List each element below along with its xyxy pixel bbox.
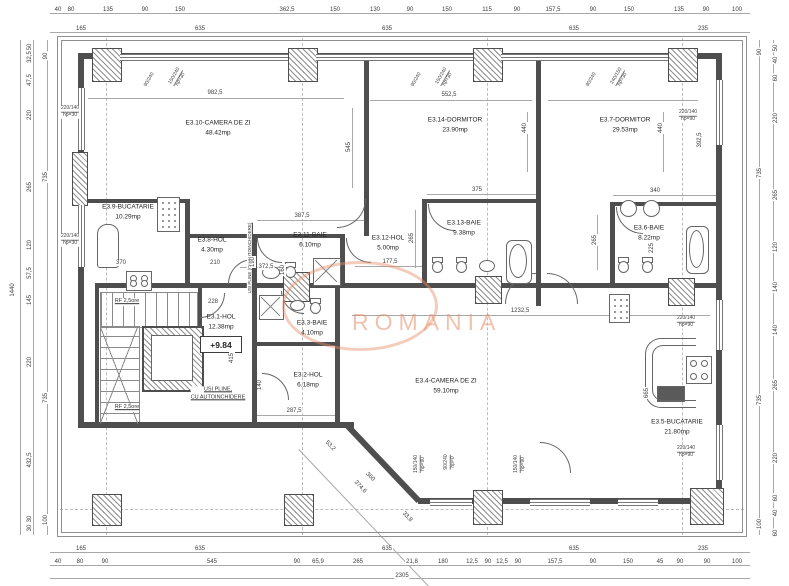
dimension-text: 140 <box>773 324 779 336</box>
dimension-line <box>352 108 353 188</box>
room-name: E3.11-BAIE <box>293 230 326 240</box>
dimension-text: 115 <box>481 7 493 13</box>
dimension-line <box>613 195 716 196</box>
wall <box>252 288 257 426</box>
dimension-text: 735 <box>757 167 763 179</box>
elevator-cab <box>151 335 193 381</box>
room-name: E3.14-DORMITOR <box>428 115 482 125</box>
dimension-text: 12,5 <box>465 559 479 565</box>
wall <box>335 288 340 428</box>
dimension-line <box>50 552 750 553</box>
dimension-text: 90 <box>702 7 711 13</box>
dimension-text: 2305 <box>394 573 409 579</box>
room-area: 21.80mp <box>651 427 703 437</box>
dimension-text: 265 <box>352 559 364 565</box>
dimension-text: 362,5 <box>278 7 295 13</box>
window <box>501 54 668 61</box>
room-name: E3.8-HOL <box>198 235 227 245</box>
structural-column <box>668 48 698 82</box>
window-tag: 220/140hp=90 <box>679 110 697 123</box>
dimension-text: 190 <box>250 256 256 268</box>
dimension-line <box>257 415 339 416</box>
dimension-text: 210 <box>209 260 221 266</box>
toilet-fixture <box>618 257 629 273</box>
dimension-text: 90 <box>101 559 110 565</box>
dimension-text: 90 <box>513 7 522 13</box>
room-label: E3.2-HOL6.18mp <box>294 370 323 390</box>
room-label: E3.3-BAIE4.10mp <box>297 318 327 338</box>
dimension-line <box>759 40 760 535</box>
room-label: E3.14-DORMITOR23.90mp <box>428 115 482 135</box>
dimension-text: 21,8 <box>405 559 419 565</box>
dimension-text: 340 <box>649 188 661 194</box>
structural-column <box>288 48 318 82</box>
structural-column <box>72 152 88 206</box>
window <box>716 80 723 145</box>
dimension-text: 552,5 <box>440 92 457 98</box>
dimension-text: 635 <box>194 546 206 552</box>
dimension-text: 440 <box>658 122 664 134</box>
dimension-text: 635 <box>568 546 580 552</box>
room-label: E3.10-CAMERA DE ZI48.42mp <box>185 118 250 138</box>
shower-cross <box>315 260 337 282</box>
dimension-text: 235 <box>697 546 709 552</box>
door-note-line: CU AUTOINCHIDERE <box>191 394 246 402</box>
dimension-text: 265 <box>409 232 415 244</box>
dimension-text: 228 <box>207 299 219 305</box>
bathtub <box>686 226 709 274</box>
dimension-text: 735 <box>43 392 49 404</box>
room-area: 48.42mp <box>185 128 250 138</box>
dimension-text: 150 <box>329 7 341 13</box>
bathtub-basin <box>509 244 527 278</box>
dimension-text: 735 <box>43 171 49 183</box>
window-sill-height: hp=30 <box>61 113 79 119</box>
stove-burner <box>130 280 137 287</box>
stove-burner <box>141 280 148 287</box>
dimension-text: 65,9 <box>311 559 325 565</box>
kitchen-counter <box>645 338 709 408</box>
dimension-text: 225 <box>649 242 655 254</box>
structural-column <box>284 494 314 526</box>
room-name: E3.10-CAMERA DE ZI <box>185 118 250 128</box>
room-name: E3.6-BAIE <box>634 223 664 233</box>
dimension-text: 12,5 <box>495 559 509 565</box>
room-label: E3.1-HOL12.38mp <box>207 312 236 332</box>
dimension-line <box>33 40 34 535</box>
wall <box>95 283 720 288</box>
dimension-text: 40 <box>54 559 63 565</box>
door-note: USI PLINE,CU AUTOINCHIDERE <box>191 386 246 401</box>
dimension-text: 265 <box>773 379 779 391</box>
room-name: E3.7-DORMITOR <box>600 115 651 125</box>
dimension-text: 265 <box>27 181 33 193</box>
room-area: 6.18mp <box>294 380 323 390</box>
dimension-text: 635 <box>568 26 580 32</box>
dimension-line <box>370 100 532 101</box>
window-sill-height: hp=90 <box>677 453 695 459</box>
dimension-text: 80 <box>67 7 76 13</box>
dimension-text: 665 <box>644 387 650 399</box>
dimension-text: 150 <box>174 7 186 13</box>
dimension-text: 545 <box>206 559 218 565</box>
window <box>78 205 85 267</box>
window-sill-height: hp=90 <box>677 323 695 329</box>
wall <box>422 199 427 287</box>
dimension-text: 60 <box>773 494 779 503</box>
dimension-text: 47,5 <box>27 73 33 87</box>
room-area: 9.38mp <box>447 228 481 238</box>
window <box>716 425 723 480</box>
room-label: E3.13-BAIE9.38mp <box>447 218 481 238</box>
dimension-text: 90 <box>141 7 150 13</box>
shower-cross <box>261 297 280 316</box>
room-label: E3.12-HOL5.00mp <box>372 233 405 253</box>
toilet-fixture <box>456 257 467 273</box>
dimension-line <box>50 13 750 14</box>
wall <box>610 202 615 287</box>
wall <box>536 59 541 306</box>
dimension-text: 157,5 <box>546 559 563 565</box>
dimension-text: 375 <box>471 187 483 193</box>
dimension-text: 40 <box>773 56 779 65</box>
dimension-text: 100 <box>757 518 763 530</box>
dimension-text: 235 <box>697 26 709 32</box>
dimension-text: 220 <box>27 109 33 121</box>
dimension-text: 160 <box>280 264 286 276</box>
dimension-text: 40 <box>54 7 63 13</box>
structural-column <box>92 494 122 526</box>
toilet-fixture <box>310 298 321 314</box>
dimension-text: 45 <box>656 559 665 565</box>
sink-fixture <box>290 300 305 311</box>
window-tag: 220/140hp=30 <box>61 234 79 247</box>
room-area: 5.00mp <box>372 243 405 253</box>
dimension-text: 100 <box>731 7 743 13</box>
dimension-text: 130 <box>369 7 381 13</box>
sink-fixture <box>479 260 495 272</box>
dimension-text: 135 <box>102 7 114 13</box>
dimension-text: 90 <box>703 559 712 565</box>
dimension-text: 90 <box>589 559 598 565</box>
room-name: E3.3-BAIE <box>297 318 327 328</box>
dimension-text: 545 <box>346 141 352 153</box>
dimension-line <box>20 40 21 535</box>
dimension-text: 30 <box>27 524 33 533</box>
dimension-text: 90 <box>406 7 415 13</box>
dimension-text: 140 <box>257 379 263 391</box>
dimension-text: 140 <box>773 281 779 293</box>
wall <box>364 59 369 236</box>
room-label: E3.4-CAMERA DE ZI59.10mp <box>415 376 476 396</box>
dimension-text: 32,5 <box>27 50 33 64</box>
dimension-text: 50 <box>773 44 779 53</box>
dimension-text: 432,5 <box>27 451 33 468</box>
room-name: E3.9-BUCATARIE <box>102 202 154 212</box>
room-area: 59.10mp <box>415 386 476 396</box>
window-sill-height: hp=90 <box>679 117 697 123</box>
dimension-text: 635 <box>381 546 393 552</box>
dimension-text: 635 <box>381 26 393 32</box>
appliance <box>609 294 630 323</box>
dimension-text: 180 <box>437 559 449 565</box>
room-label: E3.9-BUCATARIE10.29mp <box>102 202 154 222</box>
window <box>316 54 473 61</box>
room-label: E3.7-DORMITOR29.53mp <box>600 115 651 135</box>
window <box>120 54 288 61</box>
room-name: E3.4-CAMERA DE ZI <box>415 376 476 386</box>
dimension-text: 165 <box>75 546 87 552</box>
dimension-text: 80 <box>76 559 85 565</box>
dimension-text: 60 <box>773 529 779 538</box>
dimension-line <box>355 266 423 267</box>
dimension-line <box>50 565 750 566</box>
dimension-line <box>415 210 416 268</box>
dimension-text: 60 <box>773 74 779 83</box>
dimension-text: 220 <box>27 356 33 368</box>
dimension-text: 90 <box>43 52 49 61</box>
room-area: 12.38mp <box>207 322 236 332</box>
dimension-line <box>548 100 698 101</box>
room-label: E3.6-BAIE8.22mp <box>634 223 664 243</box>
dimension-text: 372,5 <box>257 264 274 270</box>
window-sill-height: hp=90 <box>421 455 427 473</box>
dimension-text: 100 <box>43 514 49 526</box>
room-area: 23.90mp <box>428 125 482 135</box>
room-name: E3.5-BUCATARIE <box>651 417 703 427</box>
dimension-text: 90 <box>293 559 302 565</box>
elevator-shaft <box>142 326 204 392</box>
window-sill-height: hp=90 <box>521 455 527 473</box>
room-label: E3.5-BUCATARIE21.80mp <box>651 417 703 437</box>
toilet-bowl <box>310 302 321 314</box>
wall <box>185 199 190 287</box>
room-label: E3.8-HOL4.30mp <box>198 235 227 255</box>
wall <box>95 288 99 426</box>
room-area: 4.10mp <box>297 328 327 338</box>
toilet-fixture <box>285 262 296 278</box>
window <box>716 300 723 350</box>
dimension-line <box>50 32 750 33</box>
room-label: E3.11-BAIE6.10mp <box>293 230 326 250</box>
dimension-text: 177,5 <box>381 259 398 265</box>
dimension-text: 90 <box>676 559 685 565</box>
dimension-text: 392,5 <box>697 131 703 148</box>
door-note-line: USI PLINE, <box>191 386 246 394</box>
dimension-text: 157,5 <box>544 7 561 13</box>
dimension-text: 40 <box>773 509 779 518</box>
dimension-text: 265 <box>773 189 779 201</box>
dimension-text: 150 <box>622 559 634 565</box>
dimension-text: 90 <box>514 559 523 565</box>
dimension-text: 100 <box>731 559 743 565</box>
counter-inner <box>652 345 696 401</box>
window <box>618 499 658 506</box>
dimension-text: 150 <box>623 7 635 13</box>
dimension-text: 982,5 <box>206 90 223 96</box>
sink-fixture <box>620 200 637 217</box>
window-tag: 150/140hp=90 <box>414 455 427 473</box>
room-area: 10.29mp <box>102 212 154 222</box>
stove <box>126 271 152 291</box>
window-tag: 220/140hp=90 <box>677 446 695 459</box>
shower-tray <box>313 258 341 286</box>
dimension-text: 90 <box>484 559 493 565</box>
level-marker: +9.84 <box>200 336 242 353</box>
bathtub <box>506 240 532 284</box>
toilet-bowl <box>642 261 653 273</box>
dimension-text: 265 <box>592 234 598 246</box>
toilet-bowl <box>285 266 296 278</box>
room-name: E3.12-HOL <box>372 233 405 243</box>
window <box>78 88 85 150</box>
shower-tray <box>259 295 284 320</box>
window-tag: 90/240hp=0 <box>444 454 457 469</box>
dimension-text: 150 <box>441 7 453 13</box>
room-area: 4.30mp <box>198 245 227 255</box>
dimension-text: 220 <box>773 112 779 124</box>
dimension-text: 220 <box>773 452 779 464</box>
dimension-text: 165 <box>75 26 87 32</box>
dimension-line <box>427 194 537 195</box>
dimension-text: 440 <box>522 122 528 134</box>
dimension-text: 145 <box>27 294 33 306</box>
room-name: E3.13-BAIE <box>447 218 481 228</box>
dimension-text: 287,5 <box>285 408 302 414</box>
sink-fixture <box>643 200 660 217</box>
window-tag: 220/140hp=30 <box>61 106 79 119</box>
dimension-text: 635 <box>194 26 206 32</box>
dimension-text: 1232,5 <box>510 308 530 314</box>
dimension-text: 370 <box>115 260 127 266</box>
toilet-fixture <box>432 257 443 273</box>
dimension-text: 415 <box>229 352 235 364</box>
dimension-text: 90 <box>589 7 598 13</box>
dimension-line <box>352 315 710 316</box>
room-area: 6.10mp <box>293 240 326 250</box>
dimension-line <box>88 98 344 99</box>
structural-column <box>473 490 503 525</box>
dimension-line <box>47 40 48 535</box>
wall <box>257 342 339 346</box>
window <box>430 499 472 506</box>
dimension-text: 57,5 <box>27 266 33 280</box>
fire-rating-label: RF 2,5ore <box>115 404 139 412</box>
structural-column <box>690 488 724 525</box>
toilet-bowl <box>432 261 443 273</box>
structural-column <box>92 48 122 82</box>
dimension-text: 30 <box>27 515 33 524</box>
window-tag: 150/140hp=90 <box>514 455 527 473</box>
kitchen-cabinet <box>157 197 180 232</box>
dimension-text: 120 <box>27 239 33 251</box>
dimension-text: 120 <box>773 241 779 253</box>
window-tag: 220/140hp=90 <box>677 316 695 329</box>
room-name: E3.2-HOL <box>294 370 323 380</box>
dimension-text: 135 <box>673 7 685 13</box>
wall <box>425 199 539 203</box>
window-sill-height: hp=30 <box>61 241 79 247</box>
window-sill-height: hp=0 <box>451 454 457 469</box>
dimension-text: 90 <box>757 48 763 57</box>
bathtub-basin <box>689 230 704 268</box>
dimension-text: 387,5 <box>293 213 310 219</box>
window <box>530 499 590 506</box>
toilet-bowl <box>618 261 629 273</box>
toilet-bowl <box>456 261 467 273</box>
floor-plan-drawing: ROMANIA +9.84 E3.10-CAMERA DE ZI48.42mpE… <box>0 0 789 586</box>
room-area: 29.53mp <box>600 125 651 135</box>
structural-column <box>473 48 503 82</box>
dimension-text: 735 <box>757 394 763 406</box>
toilet-fixture <box>642 257 653 273</box>
room-name: E3.1-HOL <box>207 312 236 322</box>
structural-column <box>475 276 502 304</box>
structural-column <box>668 278 695 306</box>
fire-rating-label: RF 2,5ore <box>115 298 139 306</box>
dimension-text: 1440 <box>10 282 16 297</box>
